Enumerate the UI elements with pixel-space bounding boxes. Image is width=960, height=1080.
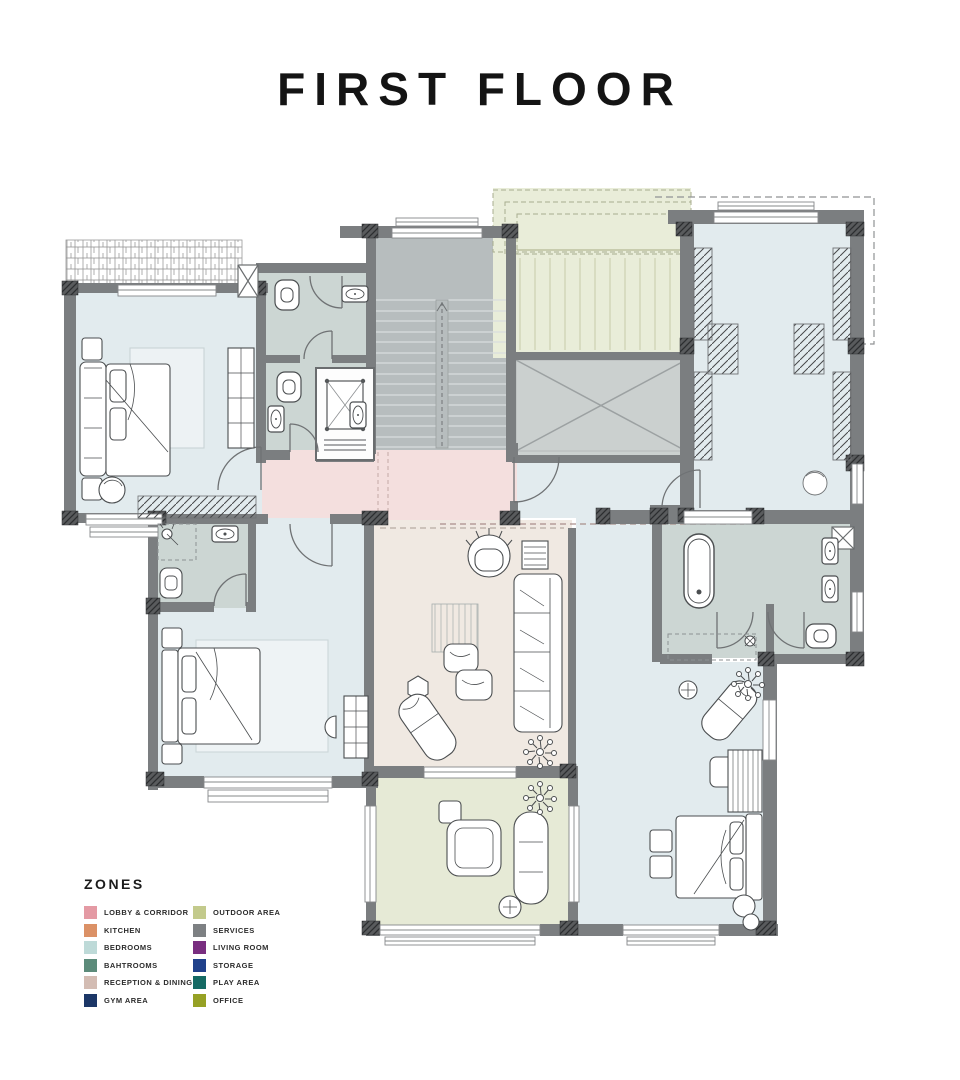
legend-item-kitchen: KITCHEN	[84, 924, 179, 937]
legend-label-lobby-corridor: LOBBY & CORRIDOR	[104, 908, 189, 917]
legend-item-services: SERVICES	[193, 924, 280, 937]
legend-item-bedrooms: BEDROOMS	[84, 941, 179, 954]
legend-swatch-reception-dining	[84, 976, 97, 989]
legend-item-play-area: PLAY AREA	[193, 976, 280, 989]
legend-swatch-outdoor-area	[193, 906, 206, 919]
page: FIRST FLOOR	[0, 0, 960, 1080]
legend-swatch-lobby-corridor	[84, 906, 97, 919]
legend-label-storage: STORAGE	[213, 961, 253, 970]
legend-item-bahtrooms: BAHTROOMS	[84, 959, 179, 972]
legend-label-play-area: PLAY AREA	[213, 978, 260, 987]
legend-label-office: OFFICE	[213, 996, 244, 1005]
legend-swatch-bedrooms	[84, 941, 97, 954]
legend-label-services: SERVICES	[213, 926, 255, 935]
legend-swatch-office	[193, 994, 206, 1007]
legend-column-1: LOBBY & CORRIDORKITCHENBEDROOMSBAHTROOMS…	[84, 906, 179, 1011]
legend-item-storage: STORAGE	[193, 959, 280, 972]
legend-swatch-storage	[193, 959, 206, 972]
zone-master-hall	[576, 518, 656, 662]
legend-item-reception-dining: RECEPTION & DINING	[84, 976, 179, 989]
zone-lobby-corridor	[262, 450, 517, 520]
legend-swatch-living-room	[193, 941, 206, 954]
legend-item-outdoor-area: OUTDOOR AREA	[193, 906, 280, 919]
legend-swatch-kitchen	[84, 924, 97, 937]
legend-item-living-room: LIVING ROOM	[193, 941, 280, 954]
legend-label-outdoor-area: OUTDOOR AREA	[213, 908, 280, 917]
legend-label-reception-dining: RECEPTION & DINING	[104, 978, 193, 987]
zones-legend: ZONES LOBBY & CORRIDORKITCHENBEDROOMSBAH…	[84, 876, 304, 1011]
legend-label-gym-area: GYM AREA	[104, 996, 148, 1005]
legend-item-office: OFFICE	[193, 994, 280, 1007]
legend-heading: ZONES	[84, 876, 304, 892]
roof-cladding	[66, 240, 242, 285]
legend-label-kitchen: KITCHEN	[104, 926, 141, 935]
legend-swatch-play-area	[193, 976, 206, 989]
legend-column-2: OUTDOOR AREASERVICESLIVING ROOMSTORAGEPL…	[193, 906, 280, 1011]
legend-swatch-services	[193, 924, 206, 937]
legend-swatch-bahtrooms	[84, 959, 97, 972]
legend-swatch-gym-area	[84, 994, 97, 1007]
legend-label-bahtrooms: BAHTROOMS	[104, 961, 158, 970]
legend-label-bedrooms: BEDROOMS	[104, 943, 152, 952]
legend-item-lobby-corridor: LOBBY & CORRIDOR	[84, 906, 179, 919]
legend-label-living-room: LIVING ROOM	[213, 943, 269, 952]
legend-item-gym-area: GYM AREA	[84, 994, 179, 1007]
